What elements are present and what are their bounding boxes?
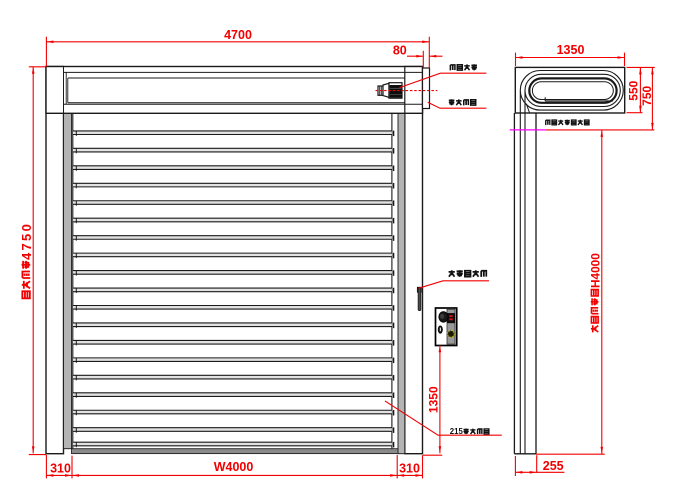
svg-text:W4000: W4000 xyxy=(214,460,254,474)
svg-text:4700: 4700 xyxy=(224,28,252,42)
svg-text:550: 550 xyxy=(627,80,641,100)
svg-text:750: 750 xyxy=(640,85,654,105)
svg-text:80: 80 xyxy=(393,44,407,58)
svg-text:255: 255 xyxy=(543,459,564,473)
svg-text:215: 215 xyxy=(450,427,464,436)
svg-text:310: 310 xyxy=(399,462,420,476)
svg-text:1350: 1350 xyxy=(557,43,585,57)
svg-text:4750: 4750 xyxy=(19,222,34,260)
svg-text:1350: 1350 xyxy=(426,386,440,413)
svg-text:H4000: H4000 xyxy=(588,253,602,288)
svg-text:310: 310 xyxy=(50,462,71,476)
